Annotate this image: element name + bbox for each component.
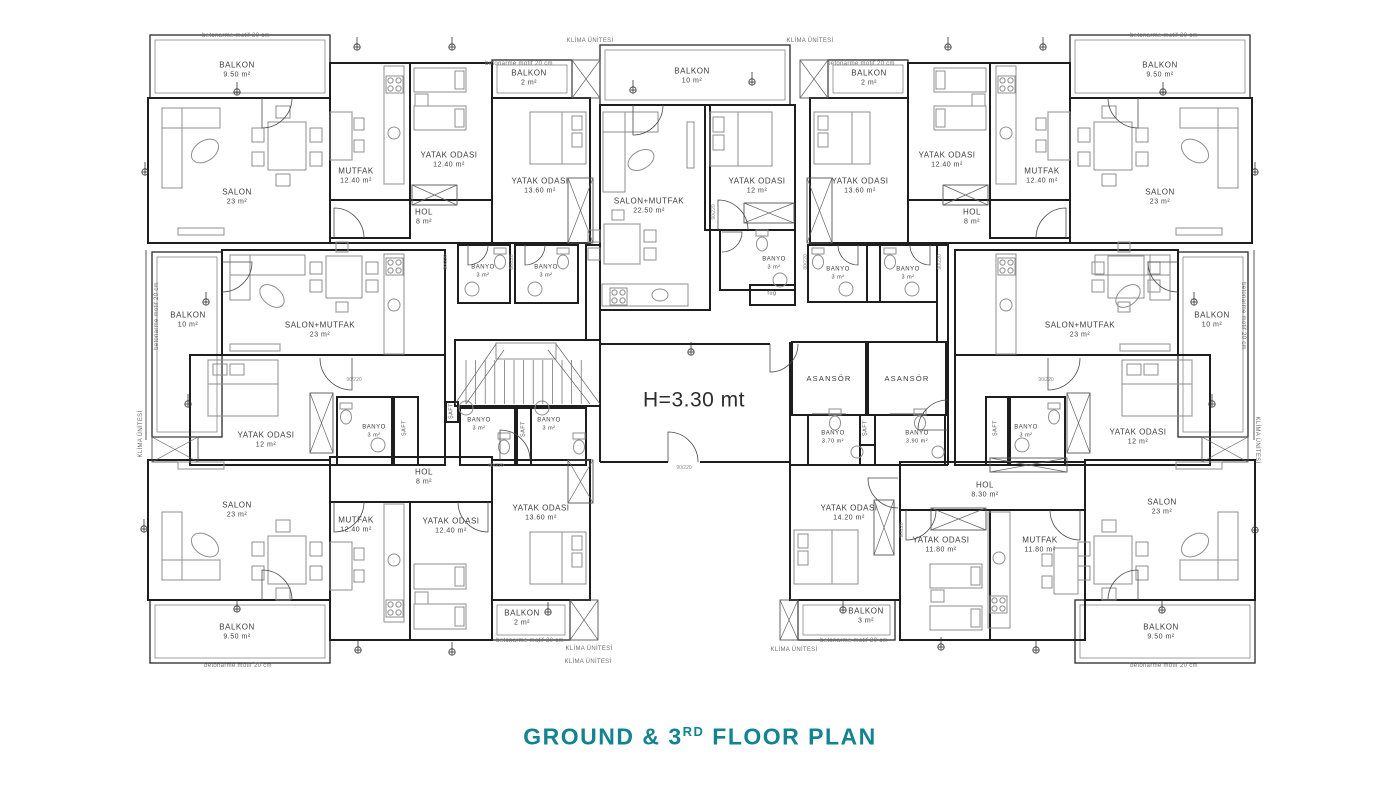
room-label-yatak-odasi-1420-bottom-right: YATAK ODASI14.20 m²: [820, 503, 877, 522]
room-label-balkon-mid-left: BALKON10 m²: [170, 310, 205, 329]
balconies-layer: [150, 35, 1255, 663]
room-label-hol-top-left: HOL8 m²: [415, 207, 433, 226]
room-label-balkon-top-right: BALKON9.50 m²: [1142, 60, 1177, 79]
room-label-hol-top-right: HOL8 m²: [963, 207, 981, 226]
annotation-klima-4: KLİMA ÜNİTESİ: [1254, 417, 1260, 464]
room-label-banyo-mid-right: BANYO3 m²: [1014, 425, 1038, 440]
room-label-mutfak-top-left: MUTFAK12.40 m²: [338, 166, 373, 185]
room-label-balkon-bottom-right: BALKON9.50 m²: [1143, 622, 1178, 641]
room-label-yatak-odasi-1360-top-left: YATAK ODASI13.60 m²: [511, 176, 568, 195]
room-label-balkon2-bottom-left: BALKON2 m²: [504, 608, 539, 627]
room-label-hol-bottom-right: HOL8.30 m²: [971, 480, 998, 499]
plan-title-rest: FLOOR PLAN: [704, 724, 876, 750]
room-label-banyo-mid-left: BANYO3 m²: [362, 425, 386, 440]
annotation-betonarme-6: betonarme motif 20 cm: [1240, 282, 1246, 350]
room-label-banyo-elevator-2: BANYO3.90 m²: [905, 431, 929, 446]
floor-plan-page: BALKON9.50 m²SALON23 m²MUTFAK12.40 m²YAT…: [0, 0, 1400, 788]
room-label-yatak-odasi-1360-top-right: YATAK ODASI13.60 m²: [831, 176, 888, 195]
room-label-mutfak-top-right: MUTFAK12.40 m²: [1024, 166, 1059, 185]
door-size-tag-door-2: 80/220: [803, 254, 809, 269]
door-size-tag-door-1: 80/220: [509, 254, 515, 269]
door-size-tag-door-4: 90/220: [711, 204, 717, 219]
walls-layer: [146, 63, 1255, 640]
annotation-betonarme-7: betonarme motif 20 cm: [204, 663, 272, 669]
annotation-betonarme-4: betonarme motif 20 cm: [1130, 33, 1198, 39]
annotation-klima-7: KLİMA ÜNİTESİ: [771, 647, 818, 653]
room-label-banyo-stair-left: BANYO3 m²: [467, 418, 491, 433]
room-label-yatak-odasi-top-right: YATAK ODASI12.40 m²: [918, 150, 975, 169]
room-label-yatak-odasi-mid-right: YATAK ODASI12 m²: [1109, 427, 1166, 446]
staircase: [455, 343, 600, 404]
annotation-klima-6: KLİMA ÜNİTESİ: [565, 659, 612, 665]
room-label-yatak-odasi-1360-bottom-left: YATAK ODASI13.60 m²: [512, 503, 569, 522]
room-label-mutfak-bottom-left: MUTFAK12.40 m²: [338, 515, 373, 534]
room-label-saft-mid-left: ŞAFT: [401, 420, 408, 436]
door-size-tag-door-5: 90/220: [346, 377, 361, 383]
door-size-tag-door-7: 90/220: [676, 465, 691, 471]
annotation-betonarme-3: betonarme motif 20 cm: [827, 61, 895, 67]
room-label-balkon-bottom-left: BALKON9.50 m²: [219, 622, 254, 641]
plan-title: GROUND & 3RD FLOOR PLAN: [523, 724, 877, 751]
annotation-betonarme-5: betonarme motif 20 cm: [154, 282, 160, 350]
room-label-banyo-a: BANYO3 m²: [471, 265, 495, 280]
room-label-yatak-odasi-mid-left: YATAK ODASI12 m²: [237, 430, 294, 449]
room-label-salon-top-left: SALON23 m²: [222, 187, 252, 206]
annotation-klima-1: KLİMA ÜNİTESİ: [567, 38, 614, 44]
room-label-hall-height: H=3.30 mt: [643, 386, 745, 413]
room-label-balkon3-bottom-right: BALKON3 m²: [848, 606, 883, 625]
annotation-klima-3: KLİMA ÜNİTESİ: [138, 411, 144, 458]
plan-title-superscript: RD: [683, 724, 705, 739]
room-label-hol-bottom-left: HOL8 m²: [415, 467, 433, 486]
room-label-fug-room: füg: [767, 290, 776, 297]
plan-title-text: GROUND & 3: [523, 724, 682, 750]
room-label-yatak-odasi-top-center: YATAK ODASI12 m²: [728, 176, 785, 195]
room-label-banyo-b: BANYO3 m²: [534, 265, 558, 280]
furniture-layer: [162, 66, 1238, 630]
room-label-banyo-c: BANYO3 m²: [826, 267, 850, 282]
door-size-tag-door-6: 90/220: [1038, 377, 1053, 383]
annotation-betonarme-9: betonarme motif 20 cm: [820, 638, 888, 644]
annotation-betonarme-8: betonarme motif 20 cm: [496, 638, 564, 644]
room-label-saft-elevator: ŞAFT: [862, 420, 869, 436]
room-label-balkon2-top-right: BALKON2 m²: [851, 68, 886, 87]
annotation-betonarme-10: betonarme motif 20 cm: [1130, 663, 1198, 669]
annotation-klima-5: KLİMA ÜNİTESİ: [566, 646, 613, 652]
room-label-banyo-top-center: BANYO3 m²: [762, 257, 786, 272]
room-label-balkon2-top-left: BALKON2 m²: [511, 68, 546, 87]
room-label-salon-mutfak-mid-right: SALON+MUTFAK23 m²: [1045, 320, 1115, 339]
room-label-salon-mutfak-top-center: SALON+MUTFAK22.50 m²: [614, 196, 684, 215]
door-size-tag-door-9: 90/220: [899, 522, 905, 537]
annotation-klima-2: KLİMA ÜNİTESİ: [787, 38, 834, 44]
door-size-tag-door-0: 90/220: [443, 254, 449, 269]
annotation-betonarme-1: betonarme motif 20 cm: [202, 33, 270, 39]
closets-and-ac-units-layer: [152, 60, 1248, 640]
door-size-tag-door-3: 90/220: [937, 254, 943, 269]
room-label-balkon-top-center: BALKON10 m²: [674, 66, 709, 85]
door-size-tag-door-8: 80/220: [488, 463, 503, 469]
room-label-asansor-2: ASANSÖR: [884, 374, 929, 384]
room-label-banyo-elevator-1: BANYO3.70 m²: [821, 431, 845, 446]
room-label-salon-bottom-left: SALON23 m²: [222, 500, 252, 519]
room-label-banyo-d: BANYO3 m²: [896, 267, 920, 282]
annotation-betonarme-2: betonarme motif 20 cm: [485, 61, 553, 67]
room-label-balkon-top-left: BALKON9.50 m²: [219, 60, 254, 79]
room-label-salon-mutfak-mid-left: SALON+MUTFAK23 m²: [285, 320, 355, 339]
room-label-saft-stair-center: ŞAFT: [520, 421, 527, 437]
room-label-saft-stair-left: ŞAFT: [448, 403, 455, 419]
room-label-yatak-odasi-1180-bottom-right: YATAK ODASI11.80 m²: [912, 535, 969, 554]
room-label-saft-mid-right: ŞAFT: [992, 420, 999, 436]
wall-markers-layer: [141, 37, 1258, 655]
room-label-asansor-1: ASANSÖR: [806, 374, 851, 384]
room-label-banyo-stair-right: BANYO3 m²: [537, 418, 561, 433]
room-label-balkon-mid-right: BALKON10 m²: [1194, 310, 1229, 329]
room-label-yatak-odasi-bottom-left: YATAK ODASI12.40 m²: [422, 516, 479, 535]
room-label-salon-top-right: SALON23 m²: [1145, 187, 1175, 206]
room-label-salon-bottom-right: SALON23 m²: [1147, 497, 1177, 516]
room-label-mutfak-bottom-right: MUTFAK11.80 m²: [1022, 535, 1057, 554]
room-label-yatak-odasi-top-left: YATAK ODASI12.40 m²: [420, 150, 477, 169]
